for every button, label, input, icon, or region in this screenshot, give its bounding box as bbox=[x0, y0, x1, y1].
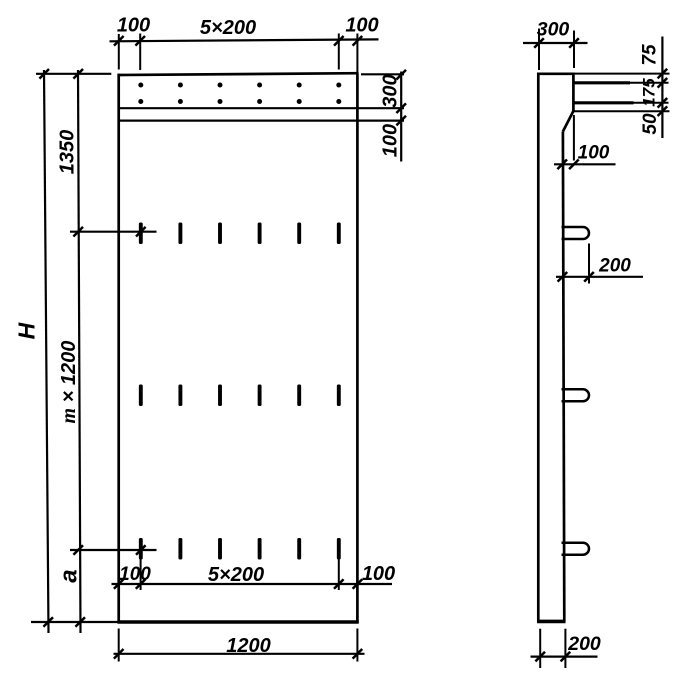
svg-text:175: 175 bbox=[640, 78, 659, 107]
svg-text:m × 1200: m × 1200 bbox=[58, 341, 80, 424]
svg-text:300: 300 bbox=[380, 74, 402, 107]
svg-text:50: 50 bbox=[640, 113, 661, 135]
svg-text:100: 100 bbox=[117, 15, 150, 37]
svg-text:100: 100 bbox=[380, 124, 402, 157]
svg-text:a: a bbox=[56, 569, 83, 582]
svg-text:100: 100 bbox=[362, 563, 395, 585]
svg-text:200: 200 bbox=[567, 633, 601, 655]
svg-text:1350: 1350 bbox=[57, 130, 79, 175]
svg-text:100: 100 bbox=[578, 143, 610, 164]
svg-text:300: 300 bbox=[537, 19, 570, 41]
svg-text:5×200: 5×200 bbox=[200, 17, 256, 39]
svg-text:100: 100 bbox=[345, 15, 378, 37]
svg-text:1200: 1200 bbox=[226, 635, 271, 657]
svg-text:5×200: 5×200 bbox=[208, 564, 264, 586]
svg-text:100: 100 bbox=[119, 564, 151, 585]
svg-text:H: H bbox=[14, 322, 40, 339]
svg-text:200: 200 bbox=[598, 256, 631, 277]
svg-text:75: 75 bbox=[640, 44, 661, 66]
